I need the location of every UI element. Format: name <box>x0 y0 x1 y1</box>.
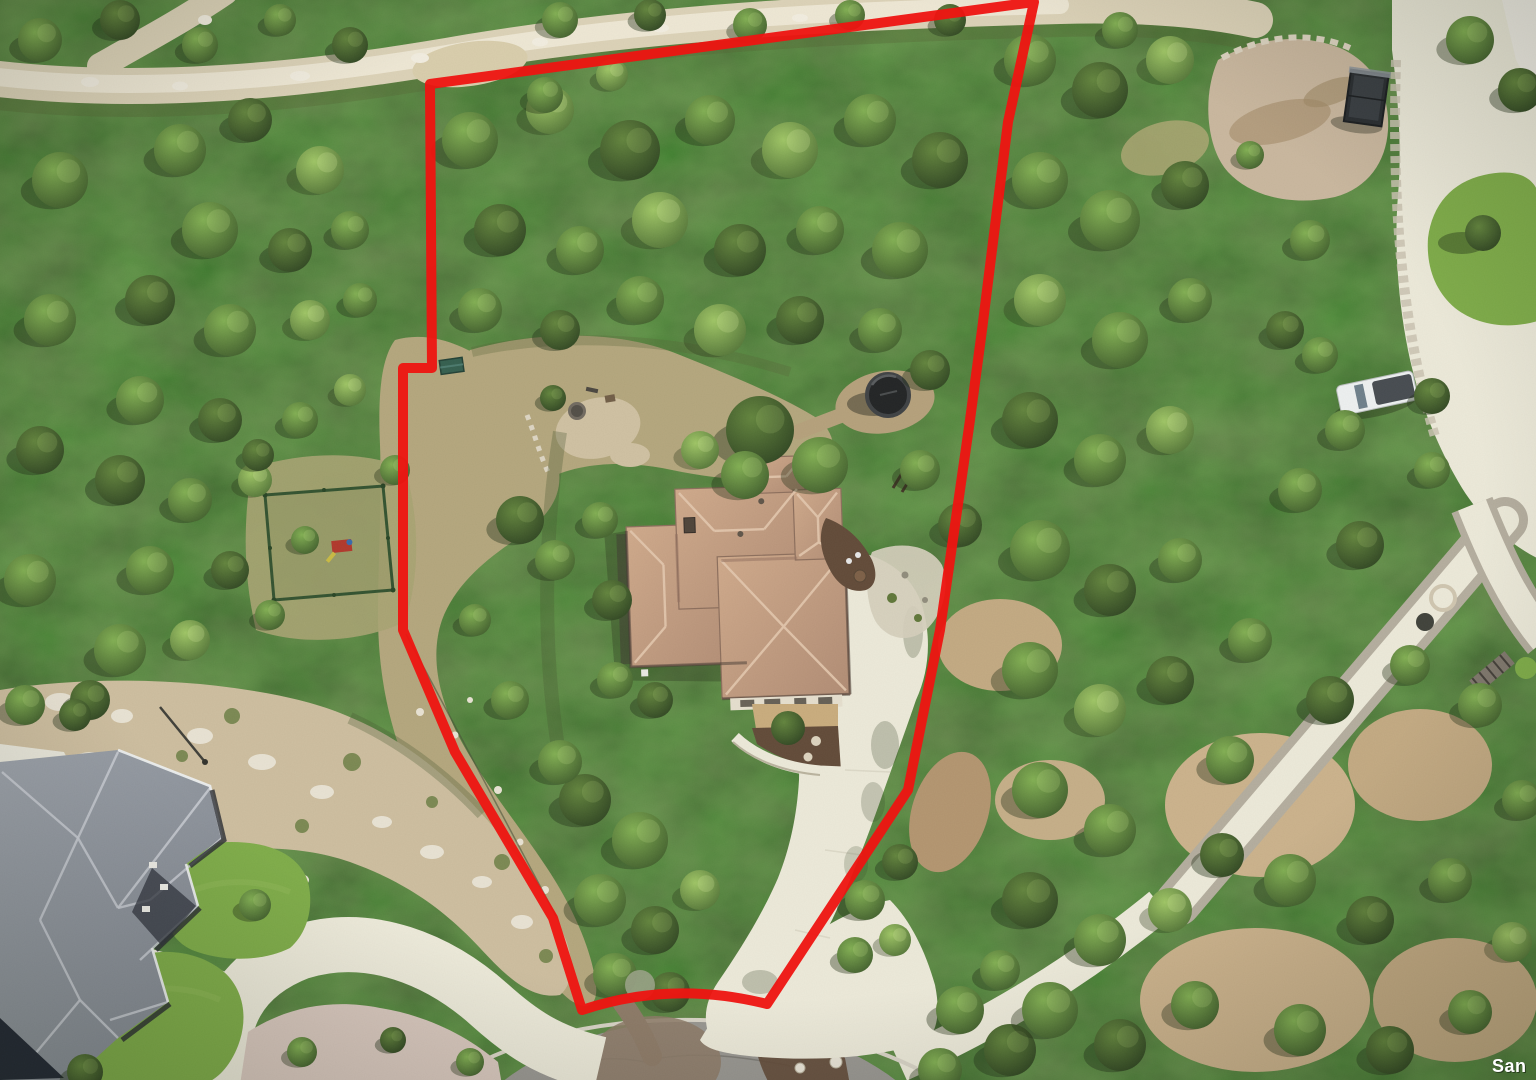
aerial-photo-canvas: San San <box>0 0 1536 1080</box>
watermark-text: San <box>1492 1056 1527 1076</box>
watermark: San San <box>1492 1056 1528 1077</box>
aerial-photo: San San <box>0 0 1536 1080</box>
vignette <box>0 0 1536 1080</box>
